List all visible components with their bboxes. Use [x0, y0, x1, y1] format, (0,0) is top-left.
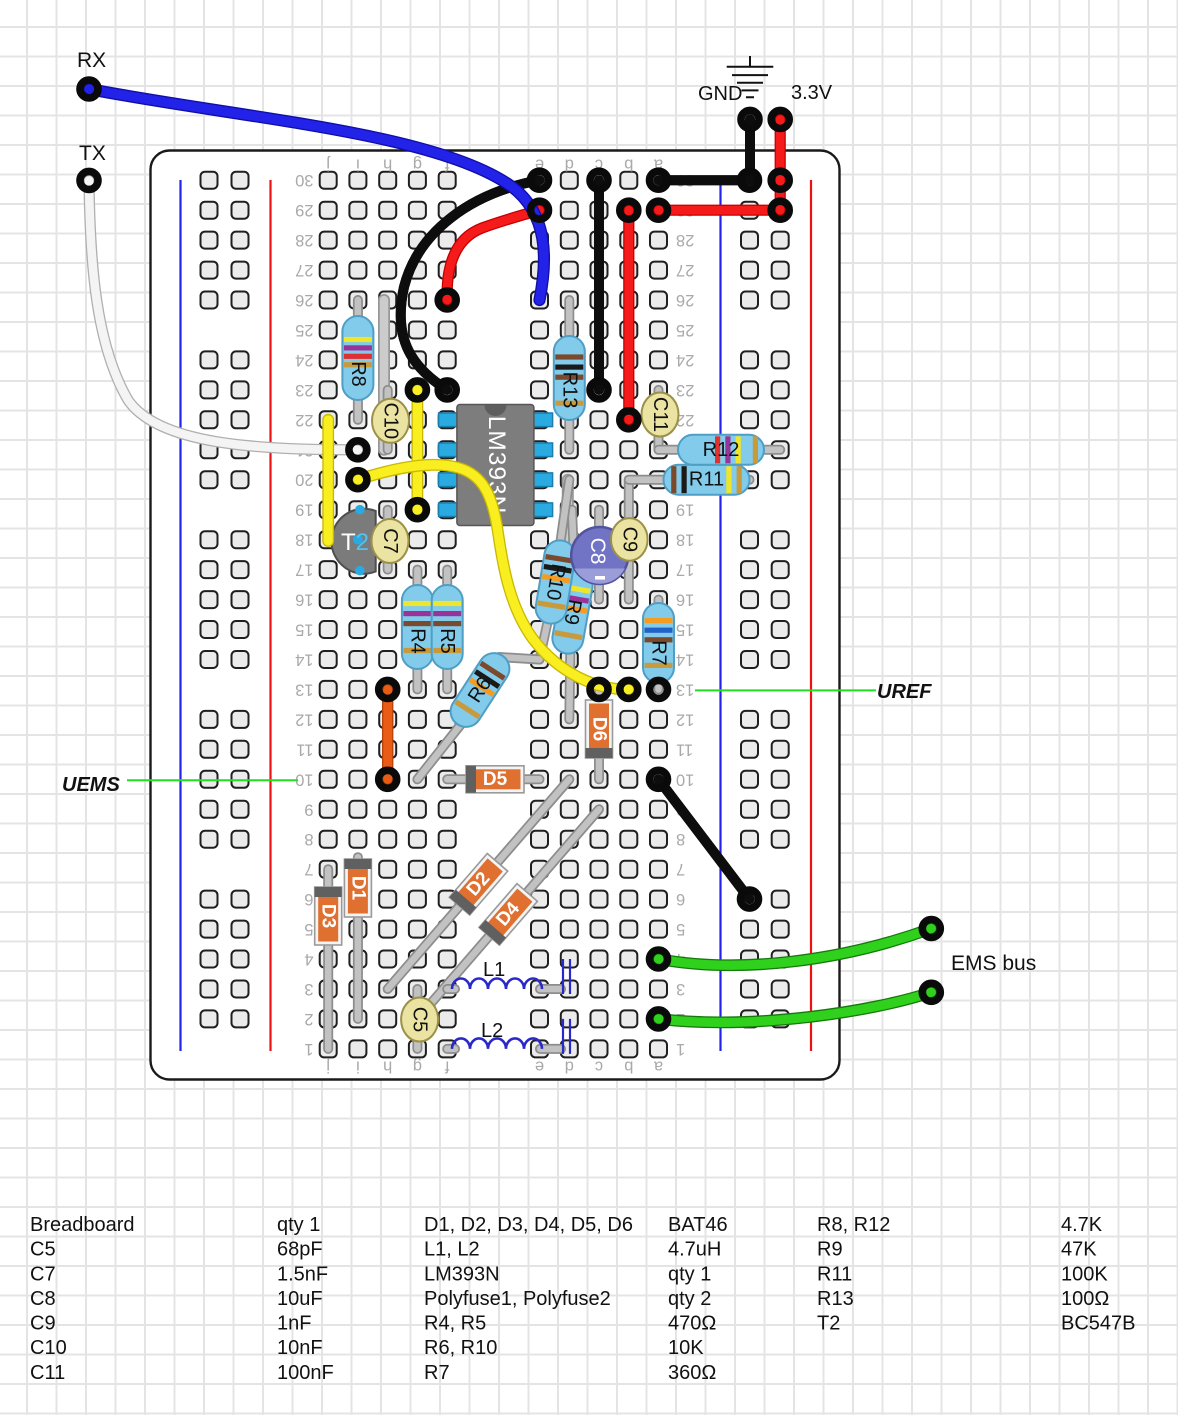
svg-text:9: 9 [304, 800, 313, 818]
svg-text:T2: T2 [341, 529, 369, 556]
svg-text:28: 28 [295, 231, 313, 249]
svg-text:3: 3 [304, 980, 313, 998]
svg-text:25: 25 [676, 321, 694, 339]
svg-text:8: 8 [676, 830, 685, 848]
svg-text:C9: C9 [30, 1313, 56, 1335]
svg-text:R11: R11 [817, 1263, 852, 1285]
svg-text:1nF: 1nF [277, 1313, 311, 1335]
svg-text:3.3V: 3.3V [791, 82, 833, 104]
svg-text:e: e [535, 1058, 544, 1076]
svg-text:10uF: 10uF [277, 1288, 323, 1310]
svg-text:30: 30 [295, 171, 313, 189]
svg-text:15: 15 [676, 621, 694, 639]
svg-text:R5: R5 [436, 628, 458, 654]
svg-text:1: 1 [676, 1040, 685, 1058]
svg-text:6: 6 [676, 890, 685, 908]
svg-text:100K: 100K [1061, 1263, 1108, 1285]
svg-text:d: d [565, 1058, 574, 1076]
svg-text:L1: L1 [483, 959, 505, 981]
svg-text:UEMS: UEMS [62, 774, 120, 796]
svg-text:C5: C5 [409, 1007, 431, 1033]
svg-text:c: c [595, 1058, 603, 1076]
svg-text:100Ω: 100Ω [1061, 1288, 1109, 1310]
svg-text:100nF: 100nF [277, 1362, 334, 1384]
svg-text:qty 1: qty 1 [668, 1263, 711, 1285]
svg-text:470Ω: 470Ω [668, 1313, 716, 1335]
svg-text:LM393N: LM393N [424, 1263, 500, 1285]
svg-text:12: 12 [295, 710, 313, 728]
svg-text:14: 14 [295, 651, 313, 669]
svg-text:R11: R11 [689, 469, 724, 491]
svg-text:BC547B: BC547B [1061, 1313, 1136, 1335]
svg-text:C10: C10 [380, 402, 402, 439]
svg-text:24: 24 [676, 351, 694, 369]
svg-text:D1, D2, D3, D4, D5, D6: D1, D2, D3, D4, D5, D6 [424, 1214, 633, 1236]
svg-text:R8, R12: R8, R12 [817, 1214, 890, 1236]
svg-text:L2: L2 [481, 1020, 503, 1042]
svg-text:1: 1 [304, 1040, 313, 1058]
svg-text:47K: 47K [1061, 1239, 1097, 1261]
svg-text:C7: C7 [30, 1263, 56, 1285]
svg-text:16: 16 [676, 591, 694, 609]
svg-text:Polyfuse1, Polyfuse2: Polyfuse1, Polyfuse2 [424, 1288, 611, 1310]
svg-text:R8: R8 [347, 361, 369, 387]
svg-text:12: 12 [676, 710, 694, 728]
svg-text:19: 19 [295, 501, 313, 519]
svg-text:C9: C9 [618, 527, 640, 553]
svg-text:11: 11 [296, 740, 313, 758]
svg-text:13: 13 [295, 680, 313, 698]
svg-text:j: j [326, 1058, 331, 1076]
svg-text:R9: R9 [817, 1239, 843, 1261]
svg-text:24: 24 [295, 351, 313, 369]
svg-text:360Ω: 360Ω [668, 1362, 716, 1384]
svg-text:R6, R10: R6, R10 [424, 1337, 497, 1359]
svg-text:5: 5 [676, 920, 685, 938]
svg-text:R13: R13 [558, 372, 580, 409]
svg-text:C8: C8 [586, 538, 609, 565]
svg-text:19: 19 [676, 501, 694, 519]
svg-text:D1: D1 [347, 876, 368, 901]
svg-text:D5: D5 [483, 769, 508, 790]
svg-text:28: 28 [676, 231, 694, 249]
svg-text:18: 18 [676, 531, 694, 549]
svg-text:L1, L2: L1, L2 [424, 1239, 480, 1261]
svg-text:R4, R5: R4, R5 [424, 1313, 486, 1335]
svg-text:26: 26 [676, 291, 694, 309]
svg-text:a: a [653, 1058, 663, 1076]
svg-text:C11: C11 [649, 397, 671, 432]
svg-text:b: b [624, 1058, 633, 1076]
svg-text:f: f [444, 1058, 449, 1076]
svg-text:27: 27 [295, 261, 313, 279]
svg-text:D6: D6 [589, 717, 610, 741]
svg-text:R4: R4 [406, 628, 428, 654]
svg-text:14: 14 [676, 651, 694, 669]
svg-text:UREF: UREF [877, 681, 932, 703]
svg-text:Breadboard: Breadboard [30, 1214, 135, 1236]
svg-text:C8: C8 [30, 1288, 56, 1310]
svg-text:10K: 10K [668, 1337, 704, 1359]
svg-text:5: 5 [304, 920, 313, 938]
svg-text:T2: T2 [817, 1313, 840, 1335]
svg-text:d: d [565, 156, 574, 174]
svg-text:EMS bus: EMS bus [951, 952, 1036, 975]
svg-text:2: 2 [304, 1010, 313, 1028]
svg-text:20: 20 [295, 471, 313, 489]
svg-text:26: 26 [295, 291, 313, 309]
svg-text:25: 25 [295, 321, 313, 339]
svg-text:4.7uH: 4.7uH [668, 1239, 721, 1261]
svg-text:g: g [413, 1058, 422, 1076]
svg-text:1.5nF: 1.5nF [277, 1263, 328, 1285]
svg-text:RX: RX [77, 49, 106, 72]
svg-text:4: 4 [304, 950, 313, 968]
svg-text:b: b [624, 156, 633, 174]
svg-text:10: 10 [676, 770, 694, 788]
svg-text:68pF: 68pF [277, 1239, 323, 1261]
svg-text:7: 7 [304, 860, 313, 878]
svg-text:D3: D3 [318, 904, 339, 928]
svg-text:23: 23 [676, 381, 694, 399]
svg-text:qty 1: qty 1 [277, 1214, 320, 1236]
svg-text:27: 27 [676, 261, 694, 279]
svg-text:18: 18 [295, 531, 313, 549]
svg-text:10nF: 10nF [277, 1337, 323, 1359]
svg-text:GND: GND [698, 83, 742, 105]
svg-text:3: 3 [676, 980, 685, 998]
svg-text:13: 13 [676, 680, 694, 698]
svg-text:TX: TX [79, 142, 106, 165]
svg-text:4.7K: 4.7K [1061, 1214, 1103, 1236]
svg-text:6: 6 [304, 890, 313, 908]
svg-text:h: h [383, 1058, 392, 1076]
svg-text:17: 17 [676, 561, 694, 579]
svg-text:R7: R7 [648, 640, 670, 666]
svg-text:C7: C7 [379, 528, 401, 554]
svg-text:8: 8 [304, 830, 313, 848]
svg-text:29: 29 [295, 201, 313, 219]
svg-text:i: i [356, 1058, 360, 1076]
svg-text:22: 22 [295, 411, 313, 429]
svg-text:C10: C10 [30, 1337, 67, 1359]
svg-text:R12: R12 [703, 439, 740, 461]
svg-text:R13: R13 [817, 1288, 854, 1310]
svg-text:17: 17 [295, 561, 313, 579]
svg-text:g: g [413, 156, 422, 174]
svg-text:qty 2: qty 2 [668, 1288, 711, 1310]
svg-text:11: 11 [676, 740, 693, 758]
svg-text:16: 16 [295, 591, 313, 609]
svg-text:h: h [383, 156, 392, 174]
svg-text:BAT46: BAT46 [668, 1214, 728, 1236]
svg-text:7: 7 [676, 860, 685, 878]
svg-text:R7: R7 [424, 1362, 450, 1384]
svg-text:23: 23 [295, 381, 313, 399]
svg-text:C11: C11 [30, 1362, 65, 1384]
svg-text:C5: C5 [30, 1239, 56, 1261]
svg-text:15: 15 [295, 621, 313, 639]
svg-text:i: i [356, 156, 360, 174]
svg-text:j: j [326, 156, 331, 174]
